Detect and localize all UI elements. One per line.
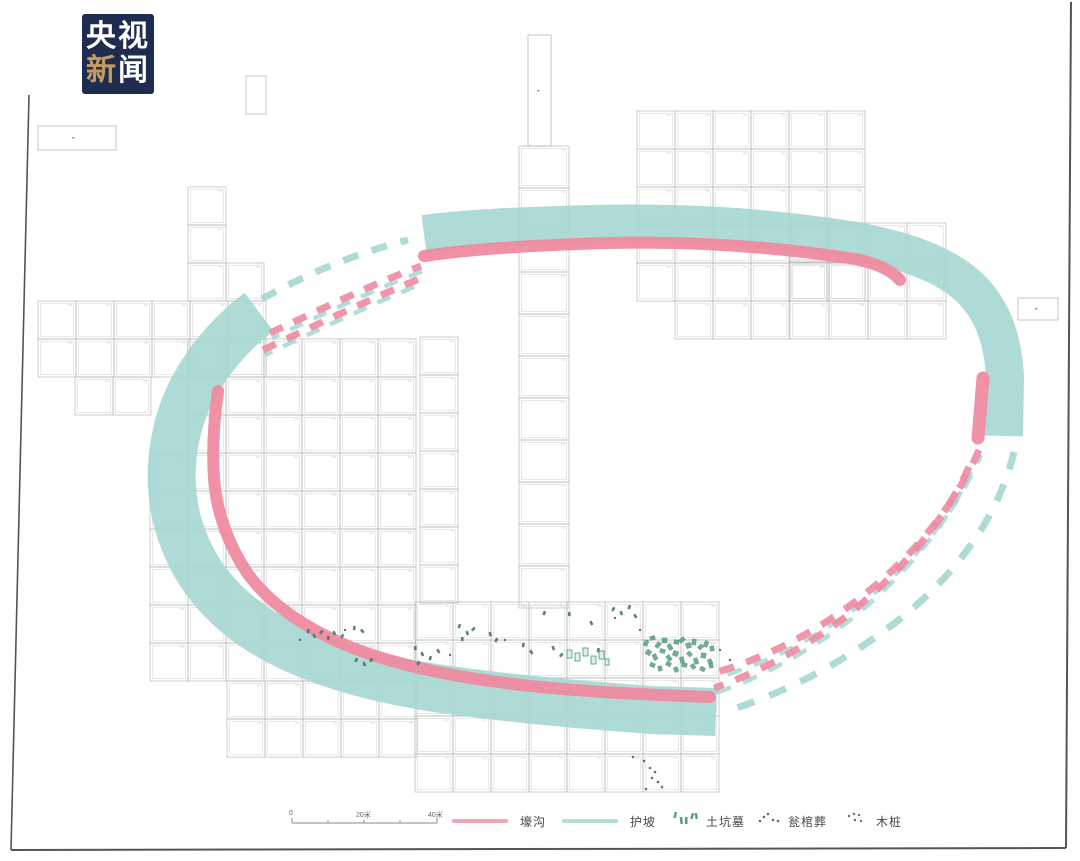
- news-photo-archaeological-site-plan: 央视 新闻 0 20米 40米 壕沟 护坡 土坑墓: [0, 0, 1080, 861]
- logo-line-2: 新闻: [86, 54, 150, 88]
- inferred-dashed-course: [262, 240, 1014, 712]
- logo-char-wen: 闻: [118, 54, 150, 87]
- logo-char-xin: 新: [86, 54, 118, 87]
- site-plan-svg: [0, 0, 1080, 861]
- cctv-news-logo: 央视 新闻: [82, 14, 154, 94]
- logo-line-1: 央视: [86, 20, 150, 54]
- slope-and-trench-bands: [172, 224, 1005, 712]
